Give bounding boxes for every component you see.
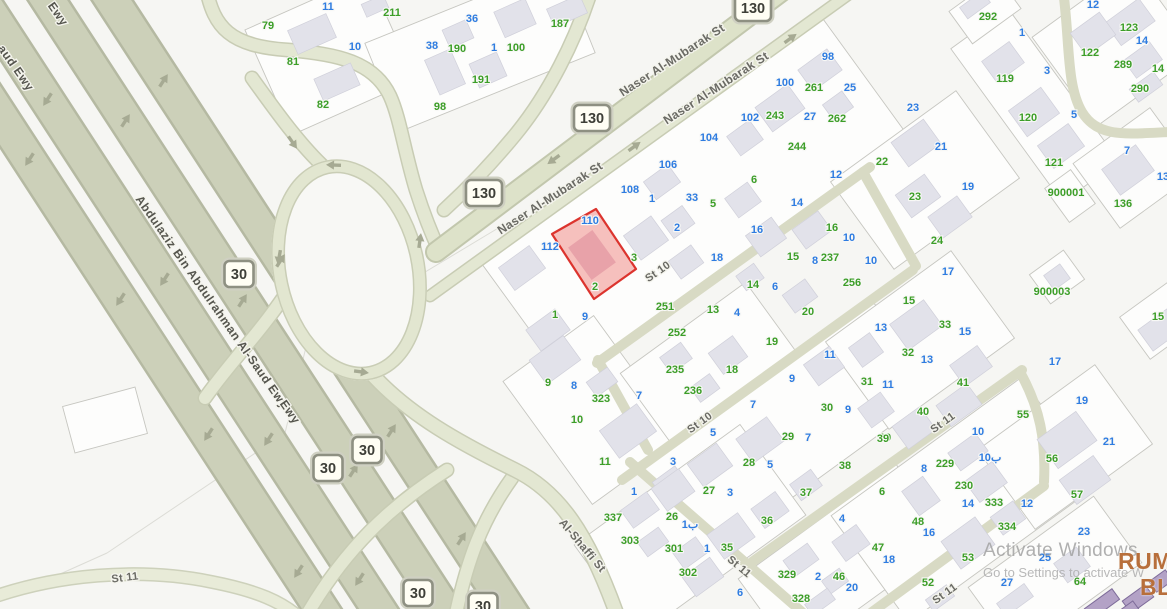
parcel-number[interactable]: 328	[792, 593, 810, 605]
parcel-number[interactable]: 15	[903, 295, 915, 307]
parcel-number[interactable]: 4	[734, 307, 741, 319]
parcel-number[interactable]: 334	[998, 521, 1017, 533]
parcel-number[interactable]: 23	[909, 191, 921, 203]
parcel-number[interactable]: 3	[670, 456, 676, 468]
parcel-number[interactable]: 251	[656, 301, 674, 313]
parcel-number[interactable]: 9	[789, 373, 795, 385]
parcel-number[interactable]: 10	[349, 41, 361, 53]
parcel-number[interactable]: 10	[571, 414, 583, 426]
parcel-number[interactable]: 900003	[1034, 286, 1071, 298]
rum-bl-logo: RUM BL	[1118, 548, 1167, 600]
parcel-number[interactable]: 12	[1021, 498, 1033, 510]
parcel-number[interactable]: 19	[766, 336, 778, 348]
parcel-number[interactable]: 25	[844, 82, 856, 94]
parcel-number[interactable]: 10	[865, 255, 877, 267]
parcel-number[interactable]: 1	[552, 309, 558, 321]
parcel-number[interactable]: 243	[766, 110, 784, 122]
parcel-number[interactable]: 14	[962, 498, 975, 510]
parcel-number[interactable]: 8	[571, 380, 577, 392]
parcel-number[interactable]: 7	[636, 390, 642, 402]
parcel-number[interactable]: 98	[822, 51, 834, 63]
parcel-number[interactable]: 9	[582, 311, 588, 323]
parcel-number[interactable]: 112	[541, 241, 559, 253]
route-shield: 130	[733, 0, 773, 23]
parcel-number[interactable]: 6	[737, 587, 743, 599]
parcel-number[interactable]: 11	[882, 379, 894, 391]
parcel-number[interactable]: 5	[1071, 109, 1077, 121]
parcel-number[interactable]: 23	[907, 102, 919, 114]
parcel-number[interactable]: 301	[665, 543, 683, 555]
parcel-number[interactable]: 56	[1046, 453, 1058, 465]
parcel-number[interactable]: 100	[776, 77, 794, 89]
route-shield: 30	[312, 453, 345, 483]
parcel-number[interactable]: 256	[843, 277, 861, 289]
parcel-number[interactable]: 2	[815, 571, 821, 583]
route-shield: 30	[351, 435, 384, 465]
parcel-number[interactable]: 14	[747, 279, 760, 291]
parcel-number[interactable]: 1	[631, 486, 637, 498]
parcel-number[interactable]: 18	[711, 252, 723, 264]
parcel-number[interactable]: 3	[631, 252, 637, 264]
parcel-number[interactable]: 10	[972, 426, 984, 438]
parcel-number[interactable]: 15	[959, 326, 971, 338]
parcel-number[interactable]: 47	[872, 542, 884, 554]
parcel-number[interactable]: ب1	[682, 519, 698, 531]
parcel-number[interactable]: 252	[668, 327, 686, 339]
parcel-number[interactable]: 23	[1078, 526, 1090, 538]
parcel-number[interactable]: 27	[1001, 577, 1013, 589]
parcel-number[interactable]: 290	[1131, 83, 1149, 95]
route-shield: 30	[467, 591, 500, 609]
parcel-number[interactable]: 120	[1019, 112, 1037, 124]
logo-line1: RUM	[1118, 548, 1167, 574]
parcel-number[interactable]: 21	[935, 141, 947, 153]
parcel-number[interactable]: 1	[704, 543, 710, 555]
route-shield-number: 130	[741, 1, 765, 17]
parcel-number[interactable]: 11	[322, 1, 334, 13]
parcel-number[interactable]: 16	[826, 222, 838, 234]
parcel-number[interactable]: 333	[985, 497, 1003, 509]
parcel-number[interactable]: 337	[604, 512, 622, 524]
parcel-number[interactable]: 8	[921, 463, 927, 475]
parcel-number[interactable]: 110	[581, 215, 599, 227]
parcel-number[interactable]: 289	[1114, 59, 1132, 71]
parcel-number[interactable]: 292	[979, 11, 997, 23]
parcel-number[interactable]: 82	[317, 99, 329, 111]
parcel-number[interactable]: 98	[434, 101, 446, 113]
parcel-number[interactable]: 7	[1124, 145, 1130, 157]
parcel-number[interactable]: 52	[922, 577, 934, 589]
parcel-number[interactable]: 46	[833, 571, 845, 583]
parcel-number[interactable]: 21	[1103, 436, 1115, 448]
parcel-number[interactable]: 13	[707, 304, 719, 316]
parcel-number[interactable]: 121	[1045, 157, 1063, 169]
parcel-number[interactable]: 29	[782, 431, 794, 443]
parcel-number[interactable]: 25	[1039, 552, 1051, 564]
parcel-number[interactable]: 31	[861, 376, 873, 388]
parcel-number[interactable]: 122	[1081, 47, 1099, 59]
parcel-number[interactable]: 302	[679, 567, 697, 579]
parcel-number[interactable]: 12	[1087, 0, 1099, 11]
parcel-number[interactable]: 5	[710, 427, 716, 439]
parcel-number[interactable]: 36	[761, 515, 773, 527]
route-shield: 130	[572, 103, 612, 133]
parcel-number[interactable]: 30	[821, 402, 833, 414]
parcel-number[interactable]: 1	[649, 193, 655, 205]
parcel-number[interactable]: 9	[545, 377, 551, 389]
parcel-number[interactable]: 26	[666, 511, 678, 523]
parcel-number[interactable]: 123	[1120, 22, 1138, 34]
parcel-number[interactable]: 108	[621, 184, 639, 196]
parcel-block	[63, 387, 148, 453]
parcel-number[interactable]: 8	[812, 255, 818, 267]
route-shield-number: 30	[410, 586, 426, 602]
parcel-number[interactable]: 18	[883, 554, 895, 566]
parcel-number[interactable]: 20	[802, 306, 814, 318]
map-viewport[interactable]: 1301301303030303030Naser Al-Mubarak StNa…	[0, 0, 1167, 609]
parcel-number[interactable]: 136	[1114, 198, 1132, 210]
parcel-number[interactable]: 211	[383, 7, 401, 19]
logo-line2: BL	[1140, 574, 1167, 600]
parcel-number[interactable]: 106	[659, 159, 677, 171]
parcel-number[interactable]: 39	[877, 433, 889, 445]
route-shield-number: 130	[472, 186, 496, 202]
parcel-number[interactable]: 38	[426, 40, 438, 52]
parcel-number[interactable]: 11	[824, 349, 836, 361]
parcel-number[interactable]: 5	[710, 198, 716, 210]
parcel-number[interactable]: 235	[666, 364, 684, 376]
parcel-number[interactable]: 40	[917, 406, 929, 418]
parcel-number[interactable]: 53	[962, 552, 974, 564]
parcel-number[interactable]: 35	[721, 542, 733, 554]
parcel-number[interactable]: 11	[599, 456, 611, 468]
parcel-number[interactable]: 12	[830, 169, 842, 181]
parcel-number[interactable]: 190	[448, 43, 466, 55]
parcel-number[interactable]: 9	[845, 404, 851, 416]
parcel-number[interactable]: 3	[727, 487, 733, 499]
parcel-number[interactable]: 17	[1049, 356, 1061, 368]
parcel-number[interactable]: 323	[592, 393, 610, 405]
parcel-number[interactable]: 18	[726, 364, 738, 376]
route-shield: 130	[464, 178, 504, 208]
parcel-number[interactable]: 19	[1076, 395, 1088, 407]
parcel-number[interactable]: 20	[846, 582, 858, 594]
parcel-number[interactable]: 261	[805, 82, 823, 94]
parcel-number[interactable]: 2	[592, 281, 598, 293]
parcel-number[interactable]: 236	[684, 385, 702, 397]
route-shield-number: 30	[320, 461, 336, 477]
parcel-number[interactable]: 262	[828, 113, 846, 125]
parcel-number[interactable]: 14	[1136, 35, 1149, 47]
parcel-number[interactable]: 191	[472, 74, 490, 86]
parcel-number[interactable]: 187	[551, 18, 569, 30]
parcel-number[interactable]: 24	[931, 235, 944, 247]
parcel-number[interactable]: ب10	[979, 452, 1002, 464]
route-shield: 30	[223, 259, 256, 289]
parcel-number[interactable]: 1	[491, 42, 497, 54]
parcel-number[interactable]: 28	[743, 457, 755, 469]
parcel-number[interactable]: 6	[751, 174, 757, 186]
parcel-number[interactable]: 10	[843, 232, 855, 244]
parcel-number[interactable]: 79	[262, 20, 274, 32]
parcel-number[interactable]: 7	[750, 399, 756, 411]
parcel-number[interactable]: 57	[1071, 489, 1083, 501]
parcel-number[interactable]: 15	[787, 251, 799, 263]
parcel-number[interactable]: 13	[921, 354, 933, 366]
route-shield-number: 130	[580, 111, 604, 127]
parcel-number[interactable]: 22	[876, 156, 888, 168]
parcel-number[interactable]: 4	[839, 513, 846, 525]
parcel-number[interactable]: 38	[839, 460, 851, 472]
parcel-number[interactable]: 14	[791, 197, 804, 209]
parcel-number[interactable]: 41	[957, 377, 969, 389]
parcel-number[interactable]: 119	[996, 73, 1014, 85]
map-canvas[interactable]: 1301301303030303030Naser Al-Mubarak StNa…	[0, 0, 1167, 609]
parcel-number[interactable]: 13	[875, 322, 887, 334]
parcel-number[interactable]: 229	[936, 458, 954, 470]
route-shield-number: 30	[359, 443, 375, 459]
parcel-number[interactable]: 27	[703, 485, 715, 497]
parcel-number[interactable]: 81	[287, 56, 299, 68]
parcel-number[interactable]: 16	[751, 224, 763, 236]
parcel-number[interactable]: 303	[621, 535, 639, 547]
parcel-number[interactable]: 237	[821, 252, 839, 264]
parcel-number[interactable]: 14	[1152, 63, 1165, 75]
parcel-number[interactable]: 17	[942, 266, 954, 278]
parcel-number[interactable]: 1	[1019, 27, 1025, 39]
parcel-number[interactable]: 900001	[1048, 187, 1085, 199]
parcel-number[interactable]: 230	[955, 480, 973, 492]
parcel-number[interactable]: 19	[962, 181, 974, 193]
parcel-number[interactable]: 33	[686, 192, 698, 204]
parcel-number[interactable]: 15	[1152, 311, 1164, 323]
parcel-number[interactable]: 100	[507, 42, 525, 54]
parcel-number[interactable]: 102	[741, 112, 759, 124]
route-shield: 30	[402, 578, 435, 608]
parcel-number[interactable]: 16	[923, 527, 935, 539]
parcel-number[interactable]: 2	[674, 222, 680, 234]
parcel-number[interactable]: 37	[800, 487, 812, 499]
parcel-number[interactable]: 3	[1044, 65, 1050, 77]
parcel-number[interactable]: 64	[1074, 576, 1087, 588]
parcel-number[interactable]: 33	[939, 319, 951, 331]
parcel-number[interactable]: 55	[1017, 409, 1029, 421]
parcel-number[interactable]: 244	[788, 141, 807, 153]
route-shield-number: 30	[475, 599, 491, 609]
parcel-number[interactable]: 36	[466, 13, 478, 25]
route-shield-number: 30	[231, 267, 247, 283]
parcel-number[interactable]: 104	[700, 132, 719, 144]
parcel-number[interactable]: 5	[767, 459, 773, 471]
parcel-number[interactable]: 6	[772, 281, 778, 293]
parcel-number[interactable]: 7	[805, 432, 811, 444]
parcel-number[interactable]: 6	[879, 486, 885, 498]
parcel-number[interactable]: 27	[804, 111, 816, 123]
parcel-number[interactable]: 329	[778, 569, 796, 581]
parcel-number[interactable]: 32	[902, 347, 914, 359]
parcel-number[interactable]: 13	[1157, 171, 1167, 183]
street-name-label: St 11	[111, 570, 139, 585]
